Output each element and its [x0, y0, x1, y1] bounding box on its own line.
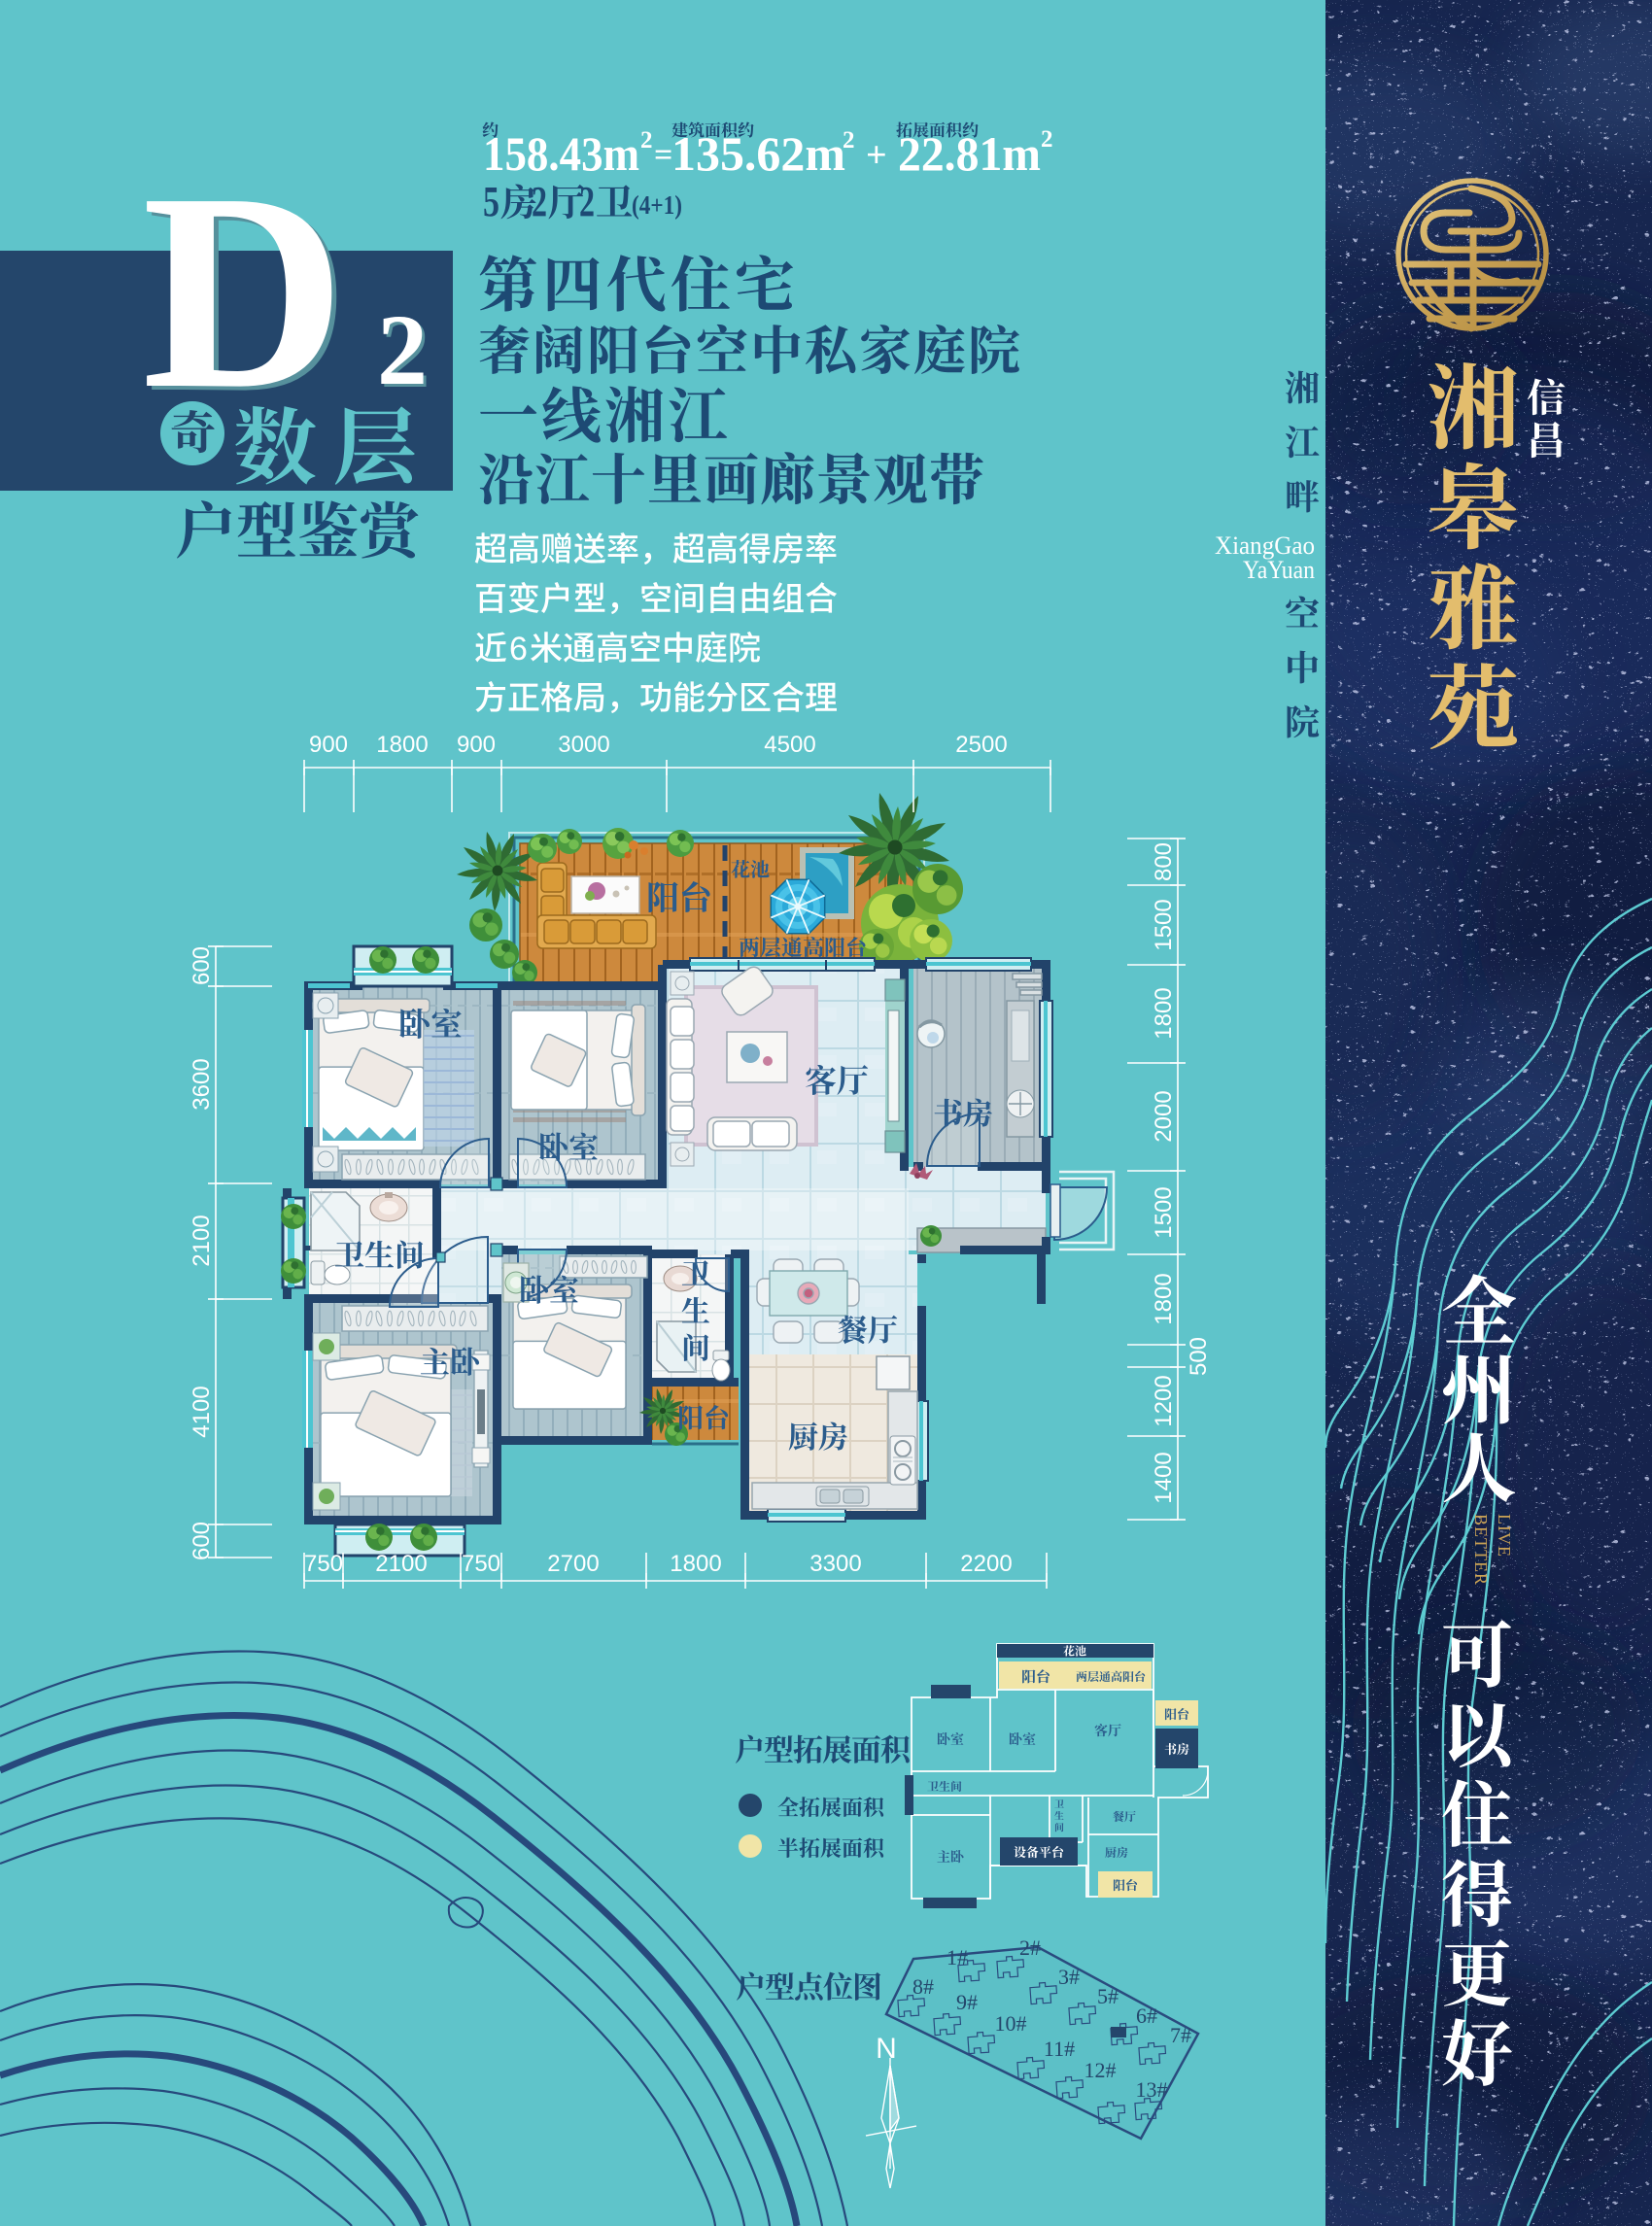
svg-text:2: 2 — [640, 127, 653, 154]
svg-text:1#: 1# — [946, 1945, 968, 1969]
svg-text:2500: 2500 — [955, 732, 1007, 758]
svg-text:1800: 1800 — [1151, 1273, 1177, 1324]
svg-text:2: 2 — [532, 178, 547, 225]
svg-text:2: 2 — [377, 294, 428, 406]
svg-text:135.62m: 135.62m — [671, 126, 845, 181]
svg-text:750: 750 — [462, 1551, 500, 1577]
svg-text:1800: 1800 — [1151, 987, 1177, 1039]
svg-text:2: 2 — [843, 127, 855, 154]
svg-text:5: 5 — [483, 178, 499, 225]
svg-text:5#: 5# — [1097, 1984, 1119, 2008]
svg-text:3000: 3000 — [558, 732, 609, 758]
svg-text:1500: 1500 — [1151, 1186, 1177, 1238]
svg-text:BETTER: BETTER — [1471, 1514, 1491, 1586]
svg-text:1500: 1500 — [1151, 899, 1177, 950]
svg-text:2000: 2000 — [1151, 1090, 1177, 1142]
svg-text:+: + — [866, 135, 887, 176]
svg-text:11#: 11# — [1044, 2037, 1075, 2061]
svg-text:=: = — [654, 137, 672, 173]
svg-text:2100: 2100 — [189, 1215, 215, 1266]
svg-text:600: 600 — [189, 1522, 215, 1560]
svg-text:LIVE: LIVE — [1495, 1514, 1514, 1558]
svg-text:N: N — [876, 2033, 897, 2065]
svg-text:3300: 3300 — [809, 1551, 861, 1577]
svg-text:1800: 1800 — [670, 1551, 721, 1577]
svg-text:6#: 6# — [1136, 2003, 1157, 2028]
svg-text:2: 2 — [1041, 126, 1053, 153]
svg-text:2: 2 — [579, 178, 595, 225]
svg-text:4100: 4100 — [189, 1386, 215, 1437]
svg-text:2700: 2700 — [547, 1551, 599, 1577]
svg-text:YaYuan: YaYuan — [1243, 556, 1315, 584]
svg-text:12#: 12# — [1084, 2058, 1117, 2082]
svg-text:1400: 1400 — [1151, 1452, 1177, 1503]
svg-text:4500: 4500 — [764, 732, 815, 758]
svg-text:8#: 8# — [912, 1974, 934, 1999]
svg-text:6: 6 — [509, 631, 528, 668]
svg-text:900: 900 — [309, 732, 348, 758]
svg-text:D: D — [142, 135, 345, 447]
svg-text:2200: 2200 — [960, 1551, 1012, 1577]
svg-text:750: 750 — [304, 1551, 343, 1577]
svg-text:1200: 1200 — [1151, 1375, 1177, 1426]
svg-text:2100: 2100 — [375, 1551, 427, 1577]
svg-text:3600: 3600 — [189, 1058, 215, 1110]
svg-text:600: 600 — [189, 946, 215, 985]
svg-text:7#: 7# — [1170, 2023, 1191, 2047]
svg-text:10#: 10# — [995, 2011, 1027, 2036]
svg-text:1800: 1800 — [376, 732, 428, 758]
svg-text:(4+1): (4+1) — [632, 190, 682, 220]
svg-text:900: 900 — [457, 732, 496, 758]
svg-text:2#: 2# — [1019, 1935, 1041, 1960]
svg-text:500: 500 — [1186, 1337, 1212, 1376]
svg-text:158.43m: 158.43m — [483, 126, 639, 181]
svg-text:9#: 9# — [956, 1990, 978, 2014]
svg-text:3#: 3# — [1058, 1965, 1080, 1989]
svg-text:800: 800 — [1151, 842, 1177, 881]
svg-text:13#: 13# — [1136, 2077, 1168, 2102]
